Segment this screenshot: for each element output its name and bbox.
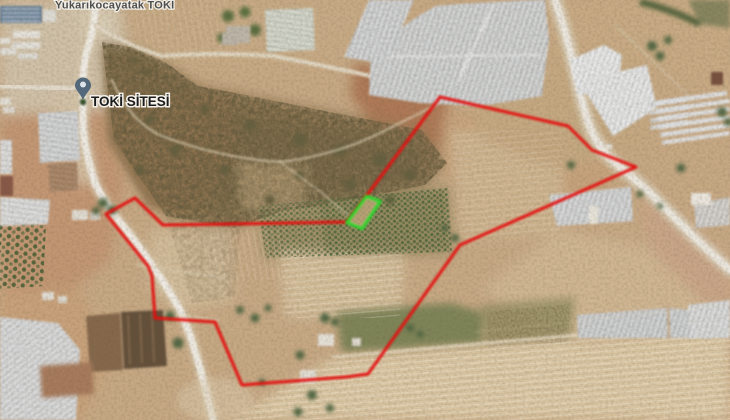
svg-text:TOKİ SİTESİ: TOKİ SİTESİ bbox=[91, 94, 170, 109]
svg-text:Yukarıkocayatak TOKİ: Yukarıkocayatak TOKİ bbox=[55, 0, 174, 12]
